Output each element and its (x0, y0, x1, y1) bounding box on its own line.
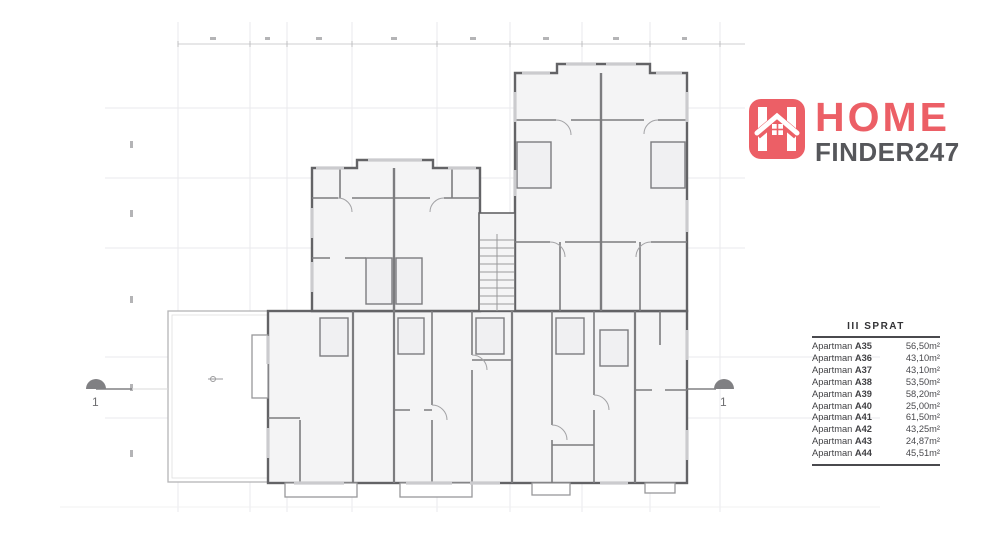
apartment-area: 43,10m² (906, 353, 940, 365)
apartment-area: 58,20m² (906, 389, 940, 401)
apartment-area: 56,50m² (906, 341, 940, 353)
legend-rows: Apartman A35 56,50m² Apartman A36 43,10m… (812, 341, 940, 460)
floor-plan: 1 1 (0, 0, 1000, 559)
apartment-legend-table: III SPRAT Apartman A35 56,50m² Apartman … (812, 321, 940, 469)
apartment-name: Apartman A39 (812, 389, 872, 401)
section-marker-left: 1 (86, 379, 168, 409)
apartment-name: Apartman A38 (812, 377, 872, 389)
table-row: Apartman A44 45,51m² (812, 448, 940, 460)
dimension-marks-left (130, 141, 133, 457)
apartment-area: 24,87m² (906, 436, 940, 448)
section-label-left: 1 (92, 395, 99, 409)
apartment-area: 45,51m² (906, 448, 940, 460)
apartment-area: 25,00m² (906, 401, 940, 413)
apartment-name: Apartman A35 (812, 341, 872, 353)
table-row: Apartman A35 56,50m² (812, 341, 940, 353)
legend-top-rule (812, 336, 940, 338)
section-label-right: 1 (720, 395, 727, 409)
apartment-name: Apartman A37 (812, 365, 872, 377)
table-row: Apartman A40 25,00m² (812, 401, 940, 413)
homefinder-logo: HOME FINDER247 (748, 98, 960, 165)
apartment-name: Apartman A41 (812, 412, 872, 424)
dimension-line-top (178, 37, 745, 47)
logo-wordmark: HOME FINDER247 (815, 98, 960, 165)
apartment-area: 53,50m² (906, 377, 940, 389)
apartment-area: 43,10m² (906, 365, 940, 377)
apartment-name: Apartman A44 (812, 448, 872, 460)
table-row: Apartman A41 61,50m² (812, 412, 940, 424)
table-row: Apartman A37 43,10m² (812, 365, 940, 377)
apartment-name: Apartman A40 (812, 401, 872, 413)
legend-bottom-rule (812, 464, 940, 466)
apartment-area: 43,25m² (906, 424, 940, 436)
table-row: Apartman A38 53,50m² (812, 377, 940, 389)
table-row: Apartman A36 43,10m² (812, 353, 940, 365)
section-marker-right: 1 (687, 379, 734, 409)
table-row: Apartman A39 58,20m² (812, 389, 940, 401)
apartment-area: 61,50m² (906, 412, 940, 424)
brand-name-bottom: FINDER247 (815, 139, 960, 165)
floorplan-page: 1 1 HOME FINDER247 III SPRAT (0, 0, 1000, 559)
brand-name-top: HOME (815, 98, 960, 137)
table-row: Apartman A42 43,25m² (812, 424, 940, 436)
apartment-name: Apartman A36 (812, 353, 872, 365)
apartment-name: Apartman A42 (812, 424, 872, 436)
home-finder-house-icon (748, 98, 806, 160)
stair-core (479, 213, 515, 311)
apartment-name: Apartman A43 (812, 436, 872, 448)
legend-title: III SPRAT (812, 321, 940, 332)
table-row: Apartman A43 24,87m² (812, 436, 940, 448)
